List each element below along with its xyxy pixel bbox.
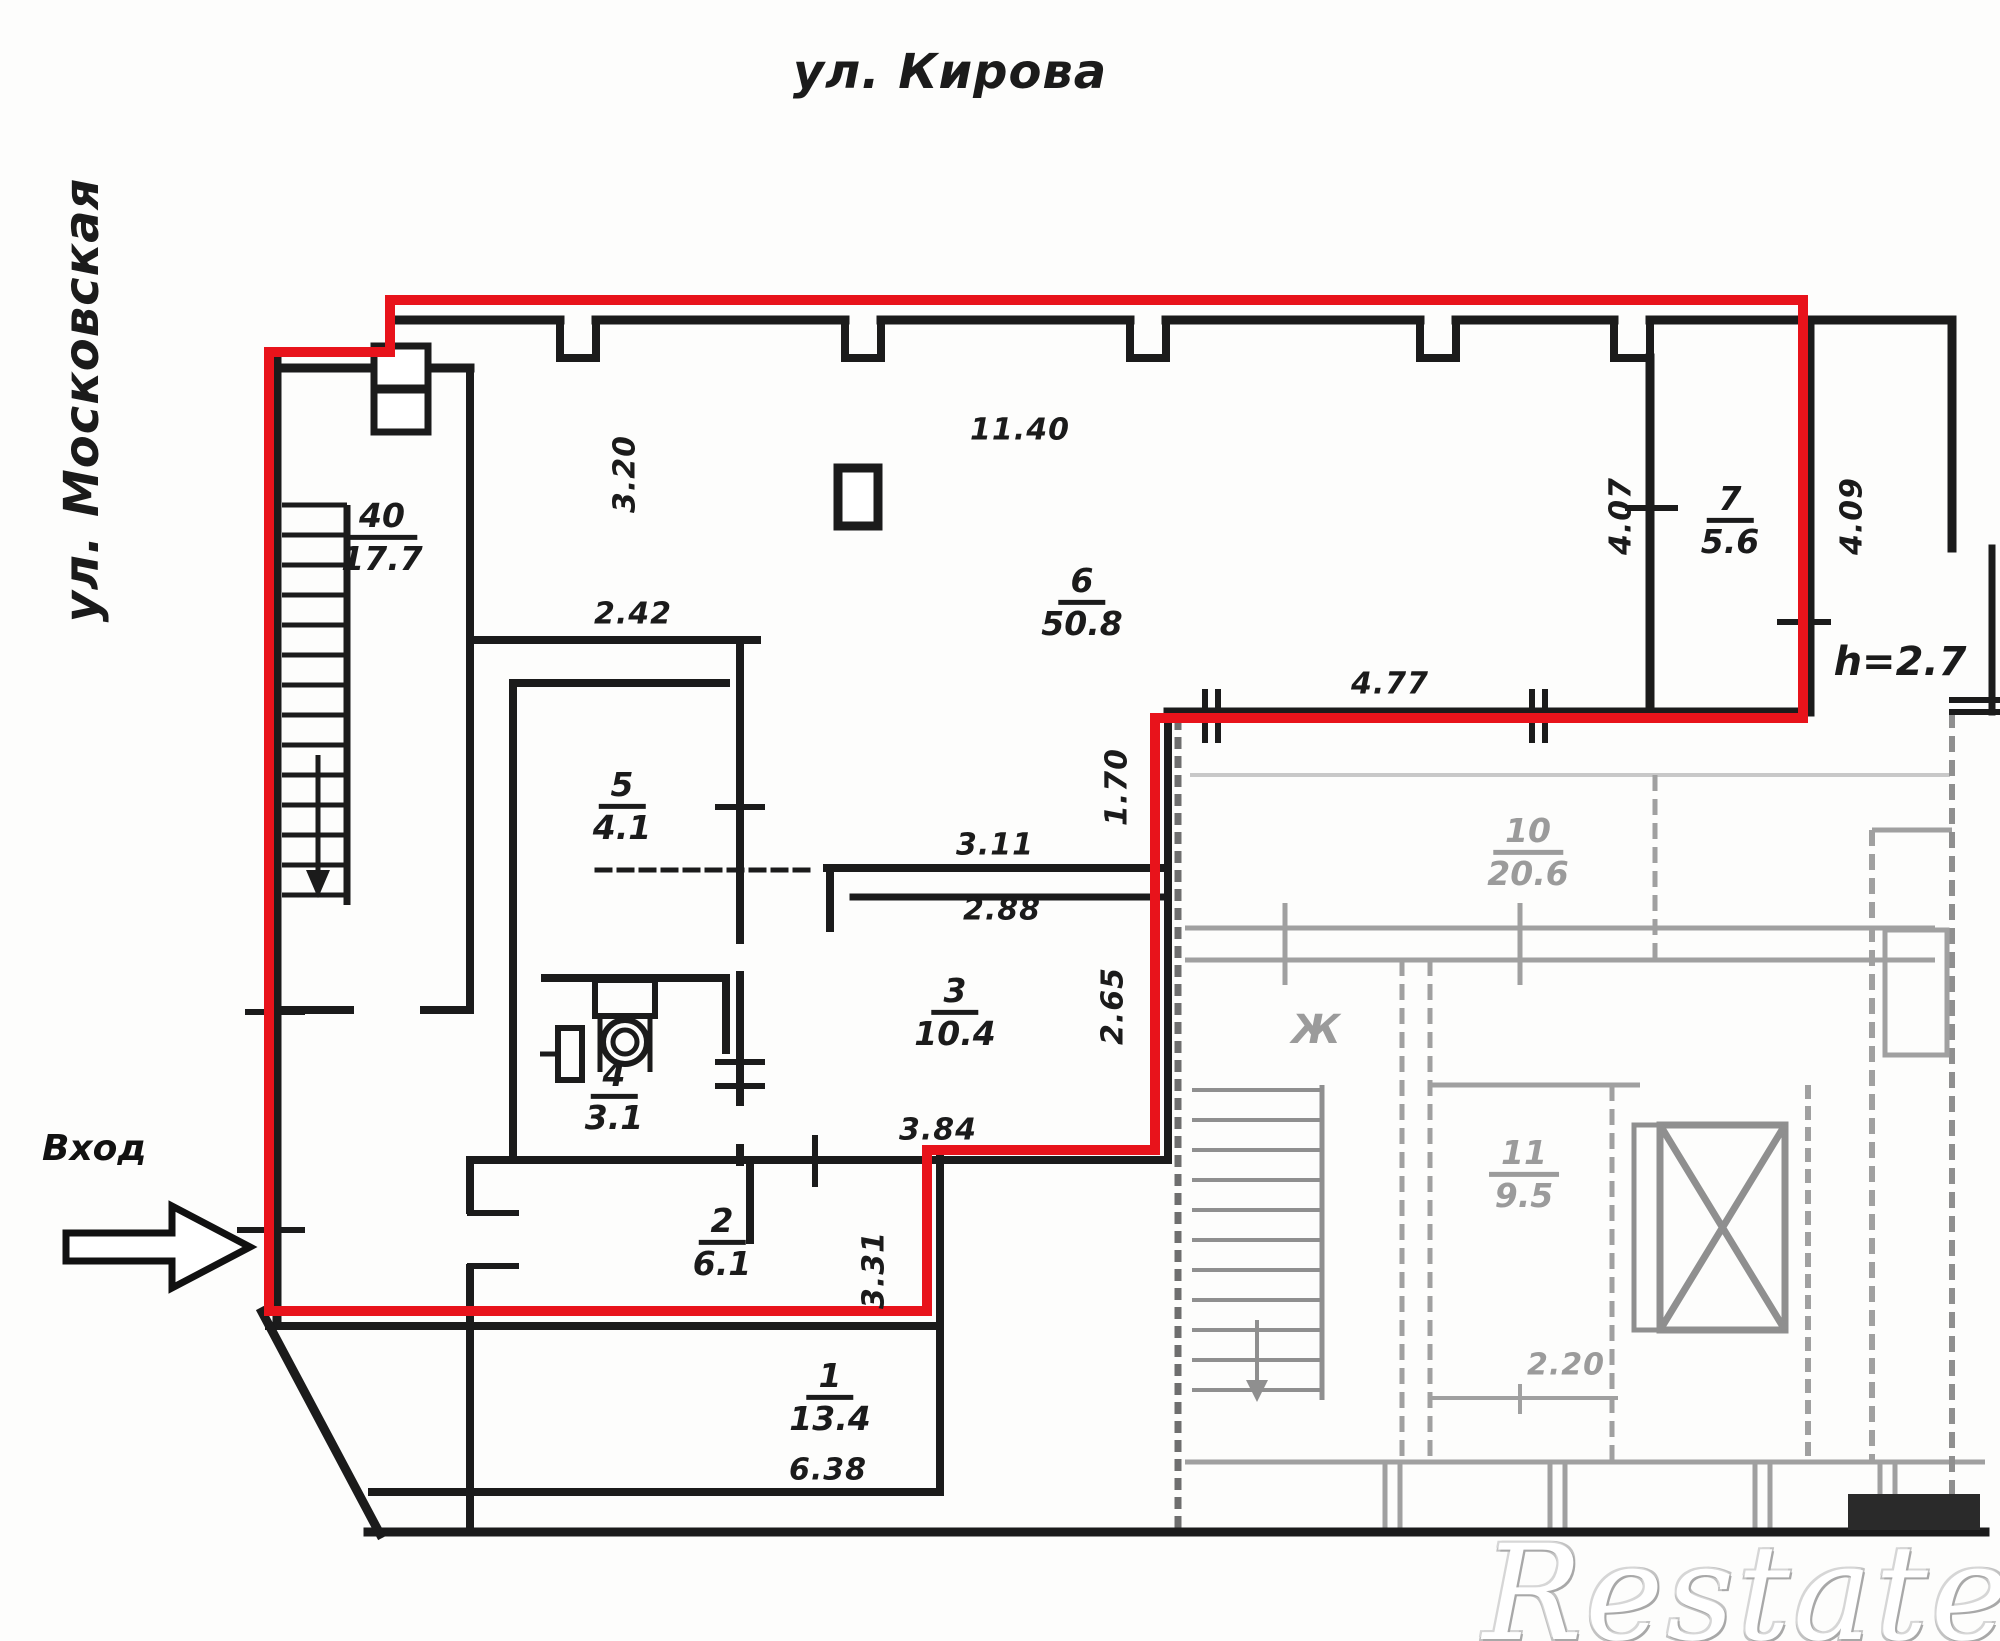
- room-area: 13.4: [789, 1400, 870, 1437]
- room-label-zh: Ж: [1292, 1007, 1341, 1053]
- dim-2-88: 2.88: [963, 893, 1041, 928]
- room-label-40: 40 17.7: [341, 498, 422, 576]
- room-number: 7: [1707, 481, 1754, 523]
- dim-6-38: 6.38: [789, 1453, 867, 1488]
- room-number: 10: [1493, 813, 1563, 855]
- room-number: 2: [699, 1203, 746, 1245]
- room-number: 1: [807, 1358, 854, 1400]
- neighbor-elevator-shaft: [1634, 1125, 1785, 1330]
- room-label-6: 6 50.8: [1041, 563, 1122, 641]
- neighbor-staircase: [1192, 1085, 1322, 1402]
- room-area: 20.6: [1487, 855, 1568, 892]
- dim-4-77: 4.77: [1351, 667, 1429, 702]
- dim-3-20: 3.20: [608, 435, 643, 513]
- room-label-3: 3 10.4: [914, 973, 995, 1051]
- room-area: 3.1: [585, 1099, 643, 1136]
- room-number: 11: [1489, 1135, 1559, 1177]
- room-number: 4: [591, 1057, 638, 1099]
- dim-11-40: 11.40: [970, 413, 1070, 448]
- floor-plan-page: ул. Кирова ул. Московская Вход 40 17.7 6…: [0, 0, 2000, 1641]
- street-label-left: ул. Московская: [54, 178, 110, 623]
- room-label-11: 11 9.5: [1489, 1135, 1559, 1213]
- room-area: 10.4: [914, 1015, 995, 1052]
- entrance-label: Вход: [42, 1128, 146, 1169]
- room-area: 5.6: [1701, 523, 1759, 560]
- room-label-7: 7 5.6: [1701, 481, 1759, 559]
- dim-4-07: 4.07: [1604, 477, 1639, 555]
- room-label-1: 1 13.4: [789, 1358, 870, 1436]
- room-area: 50.8: [1041, 605, 1122, 642]
- room-area: 6.1: [693, 1245, 751, 1282]
- dim-2-20: 2.20: [1527, 1348, 1605, 1383]
- room-number: 6: [1059, 563, 1106, 605]
- room-label-10: 10 20.6: [1487, 813, 1568, 891]
- dim-3-31: 3.31: [857, 1231, 892, 1309]
- dim-2-65: 2.65: [1096, 967, 1131, 1045]
- floor-plan-drawing: [0, 0, 2000, 1641]
- dim-3-11: 3.11: [956, 828, 1034, 863]
- room-label-4: 4 3.1: [585, 1057, 643, 1135]
- dim-2-42: 2.42: [594, 597, 672, 632]
- watermark: Restate: [1483, 1517, 2000, 1641]
- dim-4-09: 4.09: [1835, 477, 1870, 555]
- room-area: 17.7: [341, 540, 422, 577]
- room-label-2: 2 6.1: [693, 1203, 751, 1281]
- room-area: 9.5: [1495, 1177, 1553, 1214]
- ceiling-height-note: h=2.7: [1834, 639, 1967, 685]
- room-number: 3: [932, 973, 979, 1015]
- room-area: 4.1: [593, 809, 651, 846]
- room-number: 40: [347, 498, 417, 540]
- dim-1-70: 1.70: [1100, 748, 1135, 826]
- main-staircase: [282, 505, 347, 905]
- room-label-5: 5 4.1: [593, 767, 651, 845]
- street-label-top: ул. Кирова: [793, 44, 1107, 100]
- entrance-arrow-icon: [66, 1206, 250, 1288]
- dim-3-84: 3.84: [899, 1113, 977, 1148]
- room-number: 5: [599, 767, 646, 809]
